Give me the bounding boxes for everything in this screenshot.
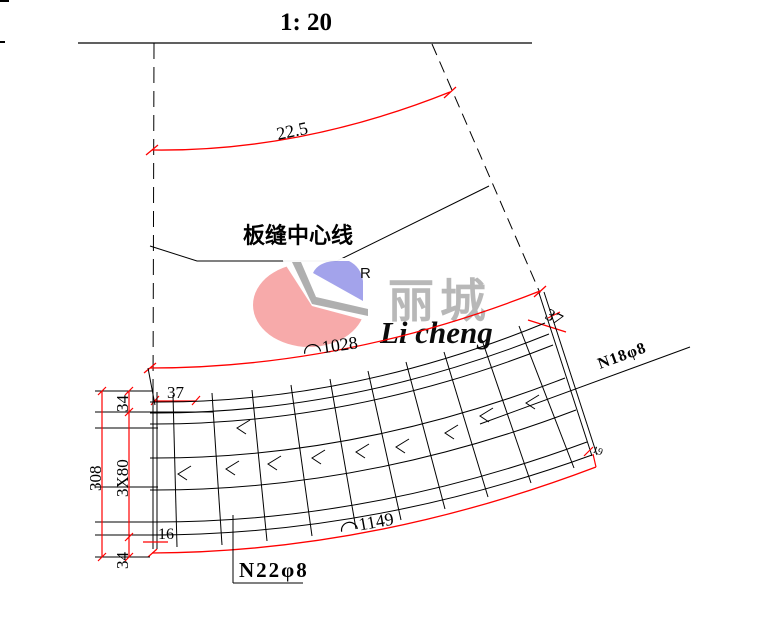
joint-centerline-label: 板缝中心线 xyxy=(243,223,353,248)
left-margin-dim-text: 37 xyxy=(167,383,185,402)
height-total-dim-text: 308 xyxy=(86,466,105,492)
arc-length-1149: 1149 xyxy=(339,509,395,538)
n18-callout: N18φ8 xyxy=(480,339,690,424)
plate-right-edge xyxy=(544,292,597,455)
arrow-mark xyxy=(268,456,281,470)
margin-bottom-dim-text: 34 xyxy=(113,552,132,570)
scale-title: 1: 20 xyxy=(280,9,332,36)
left-joint-centerline xyxy=(153,43,154,396)
top-arc-dim-text: 22.5 xyxy=(275,118,310,144)
dim-tick xyxy=(444,87,456,98)
n22-bar-label: N22φ8 xyxy=(239,558,309,582)
licheng-logo-watermark: R 丽城 Li cheng xyxy=(253,258,493,350)
radial-bar xyxy=(212,393,222,545)
top-arc-dimension: 22.5 xyxy=(146,87,456,155)
rebar-layout-drawing: 1: 20 22.5 板缝中心线 R 丽城 Li cheng 1028 xyxy=(0,0,770,623)
radial-bar xyxy=(252,390,267,541)
arrow-mark xyxy=(445,425,458,439)
margin-top-dim-text: 34 xyxy=(113,395,132,413)
radial-bar xyxy=(444,352,488,497)
arrow-mark xyxy=(237,420,250,434)
n18-leader-line xyxy=(480,347,690,424)
n18-bar-label: N18φ8 xyxy=(596,339,649,372)
offset-bottom-left-text: 16 xyxy=(158,526,174,543)
arrow-mark xyxy=(356,444,369,458)
arc-length-1028-text: 1028 xyxy=(321,332,359,357)
edge-artifact xyxy=(0,0,9,2)
height-spacing-dim-text: 3X80 xyxy=(113,459,132,497)
arrow-mark xyxy=(312,450,325,464)
right-joint-centerline xyxy=(432,44,540,293)
arrow-mark xyxy=(226,461,239,475)
edge-artifact xyxy=(0,41,5,43)
plate-right-edge xyxy=(539,293,592,456)
left-dimension-chain: 34 3X80 308 34 xyxy=(86,387,133,569)
registered-mark: R xyxy=(360,265,371,282)
radial-bar xyxy=(368,371,401,520)
plate-bottom-arc xyxy=(152,467,596,553)
radial-bar xyxy=(173,395,177,547)
bar-direction-arrows xyxy=(178,395,539,480)
logo-name-en: Li cheng xyxy=(379,315,493,350)
arc-length-1149-text: 1149 xyxy=(357,509,395,535)
arrow-mark xyxy=(396,439,409,453)
arrow-mark xyxy=(178,466,191,480)
plate-left-edge xyxy=(148,368,155,405)
radial-bar xyxy=(482,340,531,483)
mesh-arc xyxy=(150,378,565,458)
cad-drawing-canvas: 1: 20 22.5 板缝中心线 R 丽城 Li cheng 1028 xyxy=(0,0,770,623)
mesh-circumferential-bars xyxy=(150,323,592,535)
